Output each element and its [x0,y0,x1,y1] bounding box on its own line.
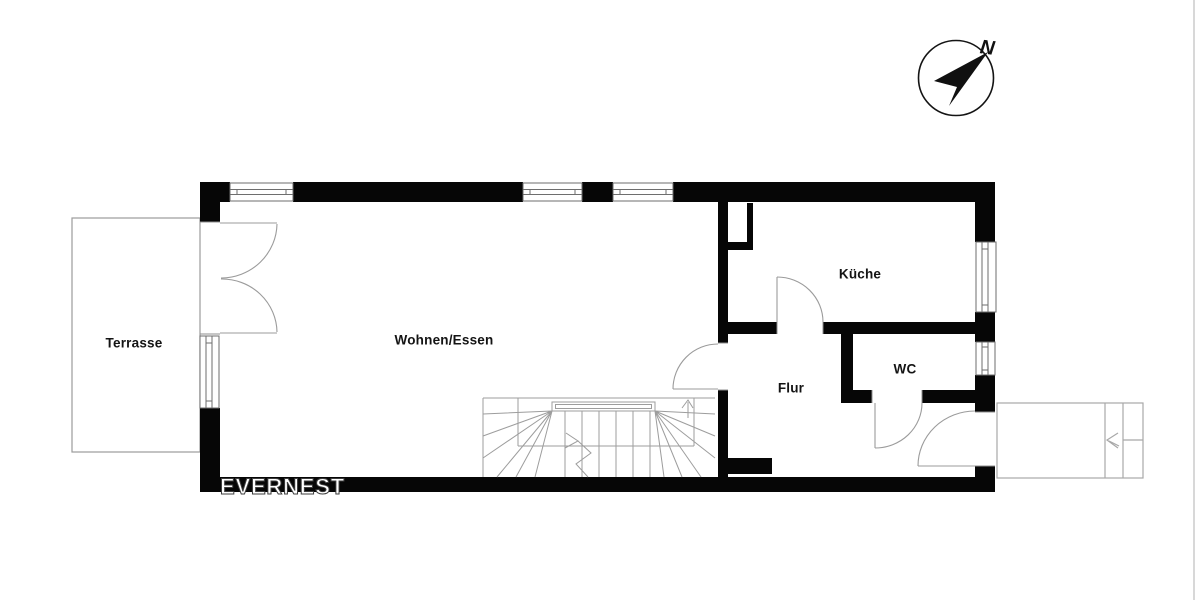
compass-north-label: N [979,36,996,61]
door-kueche [777,277,823,322]
stair-up-arrow [682,400,693,418]
door-jambs [200,222,995,466]
door-entrance [918,411,975,466]
window-top-2 [523,183,582,201]
entry-direction-arrow [1107,433,1118,448]
floorplan-canvas: Terrasse Wohnen/Essen Küche Flur WC N EV… [0,0,1200,600]
room-label-terrasse: Terrasse [106,336,163,351]
room-label-wohnen-essen: Wohnen/Essen [395,333,494,348]
door-terrace-double [220,223,277,333]
room-label-wc: WC [894,362,917,377]
room-label-flur: Flur [778,381,804,396]
door-wohnen-flur [673,344,718,389]
staircase [483,398,715,477]
brand-logo: EVERNEST [220,474,345,500]
doors [220,223,975,466]
interior-walls [718,202,975,477]
windows [200,183,996,408]
window-kueche [976,242,996,312]
floorplan-drawing [0,0,1200,600]
page-right-border [1193,0,1195,600]
window-top-1 [230,183,293,201]
stair-direction-arrow [565,433,591,477]
room-label-kueche: Küche [839,267,881,282]
window-top-3 [613,183,673,201]
stair-handrail [552,402,655,411]
entry-steps [997,403,1143,478]
door-wc [875,403,922,448]
compass-needle [934,52,988,106]
window-left [200,336,219,408]
window-wc [976,342,995,375]
